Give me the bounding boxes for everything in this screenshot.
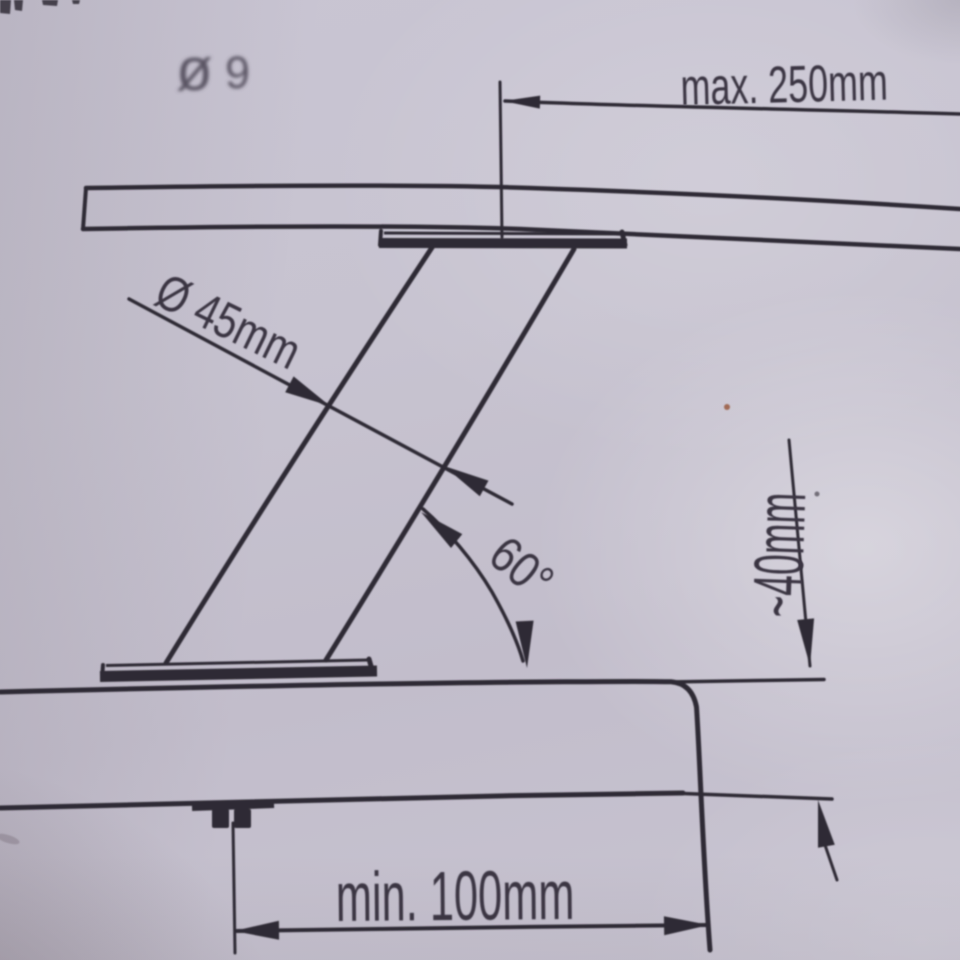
svg-text:min. 100mm: min. 100mm bbox=[335, 856, 574, 936]
svg-text:~40mm: ~40mm bbox=[737, 491, 820, 618]
svg-text:9: 9 bbox=[225, 47, 250, 98]
svg-text:max. 250mm: max. 250mm bbox=[680, 54, 889, 116]
svg-text:Ø 45mm: Ø 45mm bbox=[147, 262, 310, 380]
svg-text:60°: 60° bbox=[479, 525, 564, 609]
svg-text:ø: ø bbox=[176, 36, 213, 103]
